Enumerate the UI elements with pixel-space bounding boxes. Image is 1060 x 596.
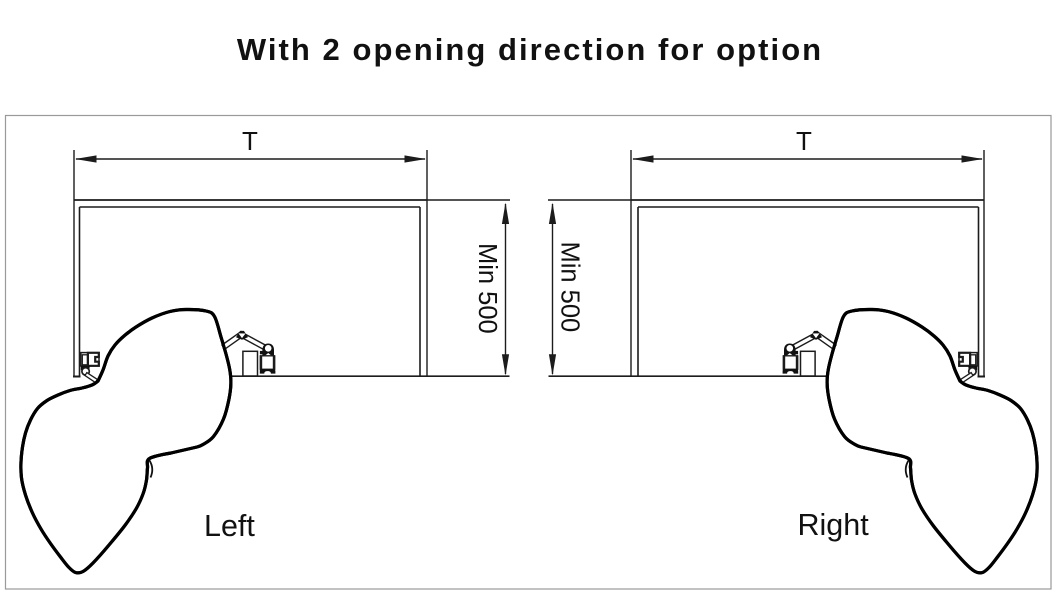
svg-text:Min 500: Min 500 — [473, 243, 501, 334]
svg-text:T: T — [242, 126, 258, 156]
svg-text:Right: Right — [798, 508, 870, 542]
svg-text:Left: Left — [204, 509, 255, 543]
svg-text:Min 500: Min 500 — [556, 242, 584, 333]
svg-text:With 2 opening direction for o: With 2 opening direction for option — [237, 32, 823, 67]
svg-text:T: T — [796, 126, 812, 156]
